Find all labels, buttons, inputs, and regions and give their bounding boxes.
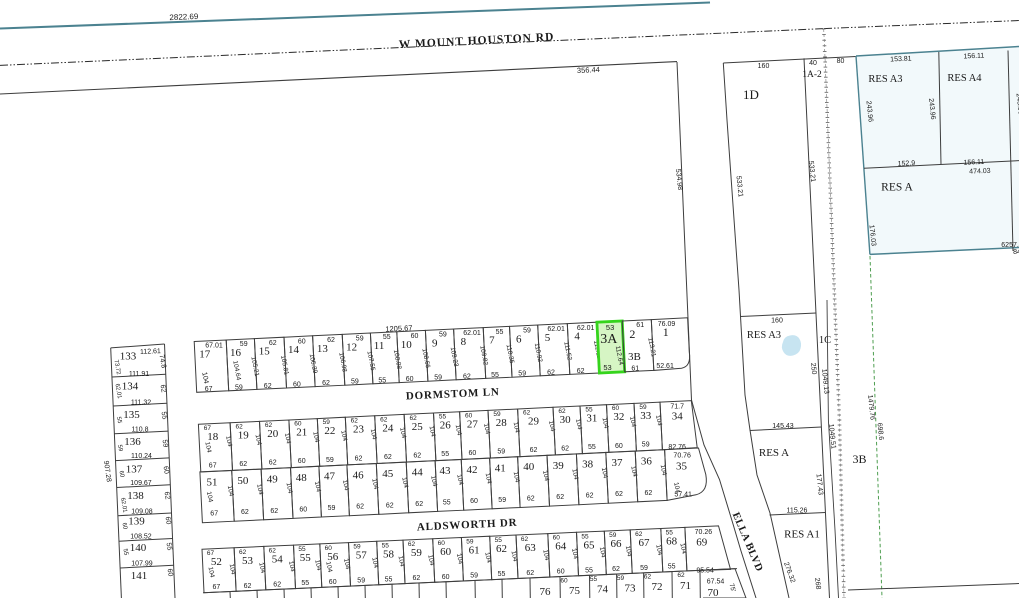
svg-text:59: 59: [523, 328, 531, 335]
svg-text:59: 59: [434, 375, 442, 382]
svg-text:48: 48: [296, 472, 308, 484]
svg-text:11: 11: [374, 340, 385, 352]
svg-text:73: 73: [625, 582, 637, 594]
svg-text:55: 55: [378, 377, 386, 384]
svg-text:62: 62: [270, 508, 278, 515]
svg-text:63: 63: [525, 542, 537, 554]
svg-text:15: 15: [259, 346, 271, 358]
svg-text:60: 60: [329, 579, 337, 586]
svg-text:41: 41: [495, 463, 506, 475]
svg-text:40: 40: [809, 60, 817, 67]
svg-text:26: 26: [440, 420, 452, 432]
svg-text:59: 59: [357, 578, 365, 585]
svg-text:62: 62: [327, 337, 335, 344]
svg-text:76: 76: [540, 586, 552, 598]
svg-text:137: 137: [126, 464, 143, 476]
svg-text:62: 62: [530, 447, 538, 454]
svg-text:160: 160: [758, 63, 770, 70]
svg-text:140: 140: [130, 542, 147, 554]
svg-text:62: 62: [677, 572, 685, 579]
svg-text:60: 60: [166, 568, 174, 577]
svg-text:57: 57: [356, 550, 368, 562]
svg-text:46: 46: [353, 469, 365, 481]
svg-text:135: 135: [123, 409, 140, 421]
svg-text:156.11: 156.11: [963, 53, 984, 61]
svg-text:250: 250: [809, 362, 817, 374]
svg-text:1A-2: 1A-2: [802, 70, 822, 80]
svg-text:31: 31: [586, 413, 597, 425]
svg-text:80: 80: [837, 58, 845, 65]
svg-text:8: 8: [461, 336, 467, 348]
svg-text:62: 62: [547, 369, 555, 376]
svg-text:52.61: 52.61: [656, 363, 674, 370]
svg-text:60: 60: [162, 466, 170, 475]
svg-text:153.81: 153.81: [890, 56, 912, 64]
svg-text:RES A3: RES A3: [868, 74, 902, 85]
svg-text:60: 60: [164, 516, 172, 525]
svg-text:12: 12: [346, 341, 357, 353]
svg-text:20: 20: [267, 428, 279, 440]
svg-text:40: 40: [523, 461, 535, 473]
svg-text:110.8: 110.8: [132, 426, 149, 433]
svg-text:60: 60: [469, 450, 477, 457]
svg-text:RES A: RES A: [759, 447, 789, 459]
svg-text:29: 29: [528, 416, 540, 428]
svg-text:71.7: 71.7: [670, 404, 684, 411]
svg-text:60: 60: [298, 458, 306, 465]
svg-text:14: 14: [288, 344, 300, 356]
svg-text:55: 55: [491, 372, 499, 379]
svg-text:65: 65: [584, 539, 596, 551]
svg-text:62: 62: [615, 491, 623, 498]
svg-text:55: 55: [668, 564, 676, 571]
svg-text:139: 139: [128, 516, 145, 528]
svg-text:110.24: 110.24: [131, 453, 152, 460]
svg-text:62: 62: [577, 368, 585, 375]
svg-text:59: 59: [161, 439, 169, 448]
svg-text:58: 58: [383, 548, 395, 560]
svg-text:62: 62: [645, 490, 653, 497]
svg-text:160: 160: [771, 318, 783, 325]
svg-text:60: 60: [440, 546, 452, 558]
svg-text:7: 7: [489, 335, 495, 347]
svg-text:25: 25: [412, 421, 424, 433]
svg-text:30: 30: [560, 414, 572, 426]
svg-text:70.76: 70.76: [673, 453, 691, 460]
svg-text:38: 38: [582, 458, 594, 470]
svg-text:61: 61: [636, 322, 644, 329]
svg-text:42: 42: [467, 464, 478, 476]
svg-text:69: 69: [696, 536, 708, 548]
svg-text:54: 54: [272, 553, 284, 565]
svg-text:109.67: 109.67: [130, 480, 152, 487]
svg-text:60: 60: [615, 443, 623, 450]
svg-text:55: 55: [160, 411, 168, 420]
svg-text:47: 47: [324, 471, 336, 483]
svg-text:36: 36: [641, 456, 653, 468]
svg-text:59: 59: [328, 505, 336, 512]
svg-text:152.9: 152.9: [898, 160, 916, 168]
svg-text:RES A1: RES A1: [784, 529, 820, 541]
svg-text:59: 59: [497, 449, 505, 456]
svg-text:111.32: 111.32: [131, 400, 151, 407]
svg-text:10: 10: [401, 339, 413, 351]
svg-text:62: 62: [244, 583, 252, 590]
svg-text:62: 62: [322, 380, 330, 387]
svg-text:268: 268: [813, 577, 821, 590]
svg-text:67: 67: [210, 511, 218, 518]
svg-text:74: 74: [597, 584, 609, 596]
svg-text:62: 62: [269, 460, 277, 467]
svg-text:64: 64: [555, 541, 567, 553]
svg-text:55: 55: [585, 567, 593, 574]
svg-text:62: 62: [644, 574, 652, 581]
svg-text:62: 62: [163, 491, 171, 500]
svg-text:16: 16: [230, 347, 242, 359]
svg-text:67: 67: [209, 463, 217, 470]
svg-text:84: 84: [1013, 249, 1019, 256]
svg-text:133: 133: [120, 351, 137, 363]
svg-text:107.99: 107.99: [131, 560, 153, 567]
svg-text:59: 59: [498, 497, 506, 504]
svg-text:108.52: 108.52: [130, 534, 152, 541]
svg-text:59: 59: [326, 457, 334, 464]
svg-text:60: 60: [557, 569, 565, 576]
svg-text:71: 71: [680, 580, 691, 592]
svg-text:59: 59: [235, 384, 243, 391]
svg-text:34: 34: [672, 411, 684, 423]
svg-text:13: 13: [317, 343, 329, 355]
svg-text:62: 62: [159, 384, 167, 393]
svg-text:RES A4: RES A4: [947, 73, 982, 84]
svg-text:62: 62: [239, 461, 247, 468]
svg-text:53: 53: [603, 363, 611, 372]
svg-text:62: 62: [355, 455, 363, 462]
svg-text:62: 62: [526, 570, 534, 577]
svg-text:59: 59: [411, 547, 423, 559]
svg-text:67: 67: [213, 584, 221, 591]
svg-text:45: 45: [382, 468, 394, 480]
svg-text:39: 39: [553, 460, 565, 472]
svg-text:RES A3: RES A3: [747, 330, 781, 341]
svg-text:134: 134: [122, 381, 139, 393]
svg-text:2: 2: [629, 327, 635, 341]
svg-text:33: 33: [640, 410, 652, 422]
svg-text:1C: 1C: [819, 335, 831, 346]
svg-text:3B: 3B: [852, 452, 866, 466]
svg-text:109.08: 109.08: [131, 508, 153, 515]
svg-text:55: 55: [498, 571, 506, 578]
svg-text:9: 9: [432, 337, 438, 349]
svg-text:75: 75: [569, 585, 581, 597]
svg-text:55: 55: [385, 576, 393, 583]
svg-text:60: 60: [293, 382, 301, 389]
svg-text:62: 62: [612, 566, 620, 573]
svg-text:59: 59: [518, 371, 526, 378]
svg-text:60: 60: [406, 376, 414, 383]
svg-text:23: 23: [353, 424, 365, 436]
svg-text:59: 59: [642, 442, 650, 449]
svg-text:68: 68: [666, 536, 678, 548]
svg-text:5: 5: [545, 332, 551, 344]
svg-text:22: 22: [324, 425, 335, 437]
svg-text:62: 62: [413, 575, 421, 582]
svg-text:59: 59: [439, 332, 447, 339]
svg-text:55: 55: [300, 552, 312, 564]
svg-text:62: 62: [264, 383, 272, 390]
svg-text:62: 62: [241, 509, 249, 516]
svg-text:67.54: 67.54: [707, 579, 725, 586]
svg-text:62: 62: [556, 494, 564, 501]
svg-text:62: 62: [415, 501, 423, 508]
svg-text:62: 62: [273, 581, 281, 588]
svg-text:67: 67: [639, 537, 651, 549]
svg-text:70: 70: [708, 587, 720, 598]
svg-text:474.03: 474.03: [969, 168, 991, 176]
svg-text:2822.69: 2822.69: [169, 12, 199, 22]
svg-text:66: 66: [611, 538, 623, 550]
svg-text:67: 67: [205, 386, 213, 393]
svg-text:62: 62: [356, 504, 364, 511]
svg-text:115.26: 115.26: [787, 507, 808, 514]
svg-text:24: 24: [382, 422, 394, 434]
svg-text:72: 72: [652, 581, 663, 593]
svg-text:60: 60: [299, 506, 307, 513]
svg-text:62: 62: [269, 340, 277, 347]
svg-text:62: 62: [463, 373, 471, 380]
svg-text:32: 32: [613, 411, 624, 423]
svg-text:49: 49: [267, 474, 279, 486]
svg-text:1D: 1D: [743, 87, 759, 102]
svg-text:44: 44: [412, 467, 424, 479]
svg-text:59: 59: [640, 565, 648, 572]
svg-text:50: 50: [237, 475, 249, 487]
svg-text:1: 1: [663, 325, 669, 339]
svg-text:55: 55: [441, 451, 449, 458]
svg-text:60: 60: [442, 574, 450, 581]
svg-text:156.11: 156.11: [963, 159, 984, 167]
svg-text:35: 35: [676, 461, 688, 473]
svg-text:21: 21: [296, 427, 307, 439]
svg-text:61: 61: [631, 365, 639, 372]
svg-text:111.91: 111.91: [129, 371, 149, 378]
svg-text:62: 62: [413, 453, 421, 460]
svg-text:62: 62: [386, 502, 394, 509]
svg-text:59: 59: [617, 575, 625, 582]
svg-text:6257.4: 6257.4: [1001, 242, 1019, 249]
svg-text:138: 138: [127, 490, 144, 502]
svg-text:19: 19: [238, 429, 250, 441]
svg-text:53: 53: [242, 555, 254, 567]
svg-text:28: 28: [496, 417, 508, 429]
svg-text:53: 53: [606, 323, 614, 332]
svg-text:37: 37: [612, 457, 624, 469]
svg-text:55: 55: [588, 444, 596, 451]
svg-text:62: 62: [586, 493, 594, 500]
svg-text:55: 55: [496, 329, 504, 336]
svg-text:3B: 3B: [628, 351, 641, 363]
svg-text:95.54: 95.54: [696, 567, 714, 574]
svg-text:70.26: 70.26: [695, 529, 713, 536]
svg-text:27: 27: [467, 418, 479, 430]
svg-text:4: 4: [574, 331, 580, 343]
svg-text:60: 60: [298, 338, 306, 345]
svg-text:62: 62: [496, 543, 507, 555]
svg-text:17: 17: [199, 349, 211, 361]
svg-text:55: 55: [301, 580, 309, 587]
svg-text:59: 59: [470, 573, 478, 580]
svg-text:6: 6: [516, 333, 522, 345]
svg-text:62: 62: [561, 446, 569, 453]
svg-text:60: 60: [560, 577, 568, 584]
svg-text:51: 51: [207, 476, 218, 488]
svg-text:RES A: RES A: [881, 182, 913, 194]
svg-text:59: 59: [351, 379, 359, 386]
svg-text:55: 55: [165, 542, 173, 551]
svg-text:43: 43: [440, 465, 452, 477]
svg-text:136: 136: [124, 436, 141, 448]
svg-text:55: 55: [590, 576, 598, 583]
svg-text:61: 61: [469, 545, 480, 557]
svg-text:55: 55: [443, 499, 451, 506]
svg-text:3A: 3A: [600, 332, 618, 347]
svg-text:62: 62: [527, 496, 535, 503]
svg-text:145.43: 145.43: [772, 423, 794, 430]
svg-text:57.41: 57.41: [674, 491, 692, 498]
svg-text:141: 141: [131, 570, 148, 582]
svg-text:356.44: 356.44: [577, 65, 600, 75]
svg-text:60: 60: [411, 333, 419, 340]
svg-text:60: 60: [470, 498, 478, 505]
svg-text:62: 62: [384, 454, 392, 461]
